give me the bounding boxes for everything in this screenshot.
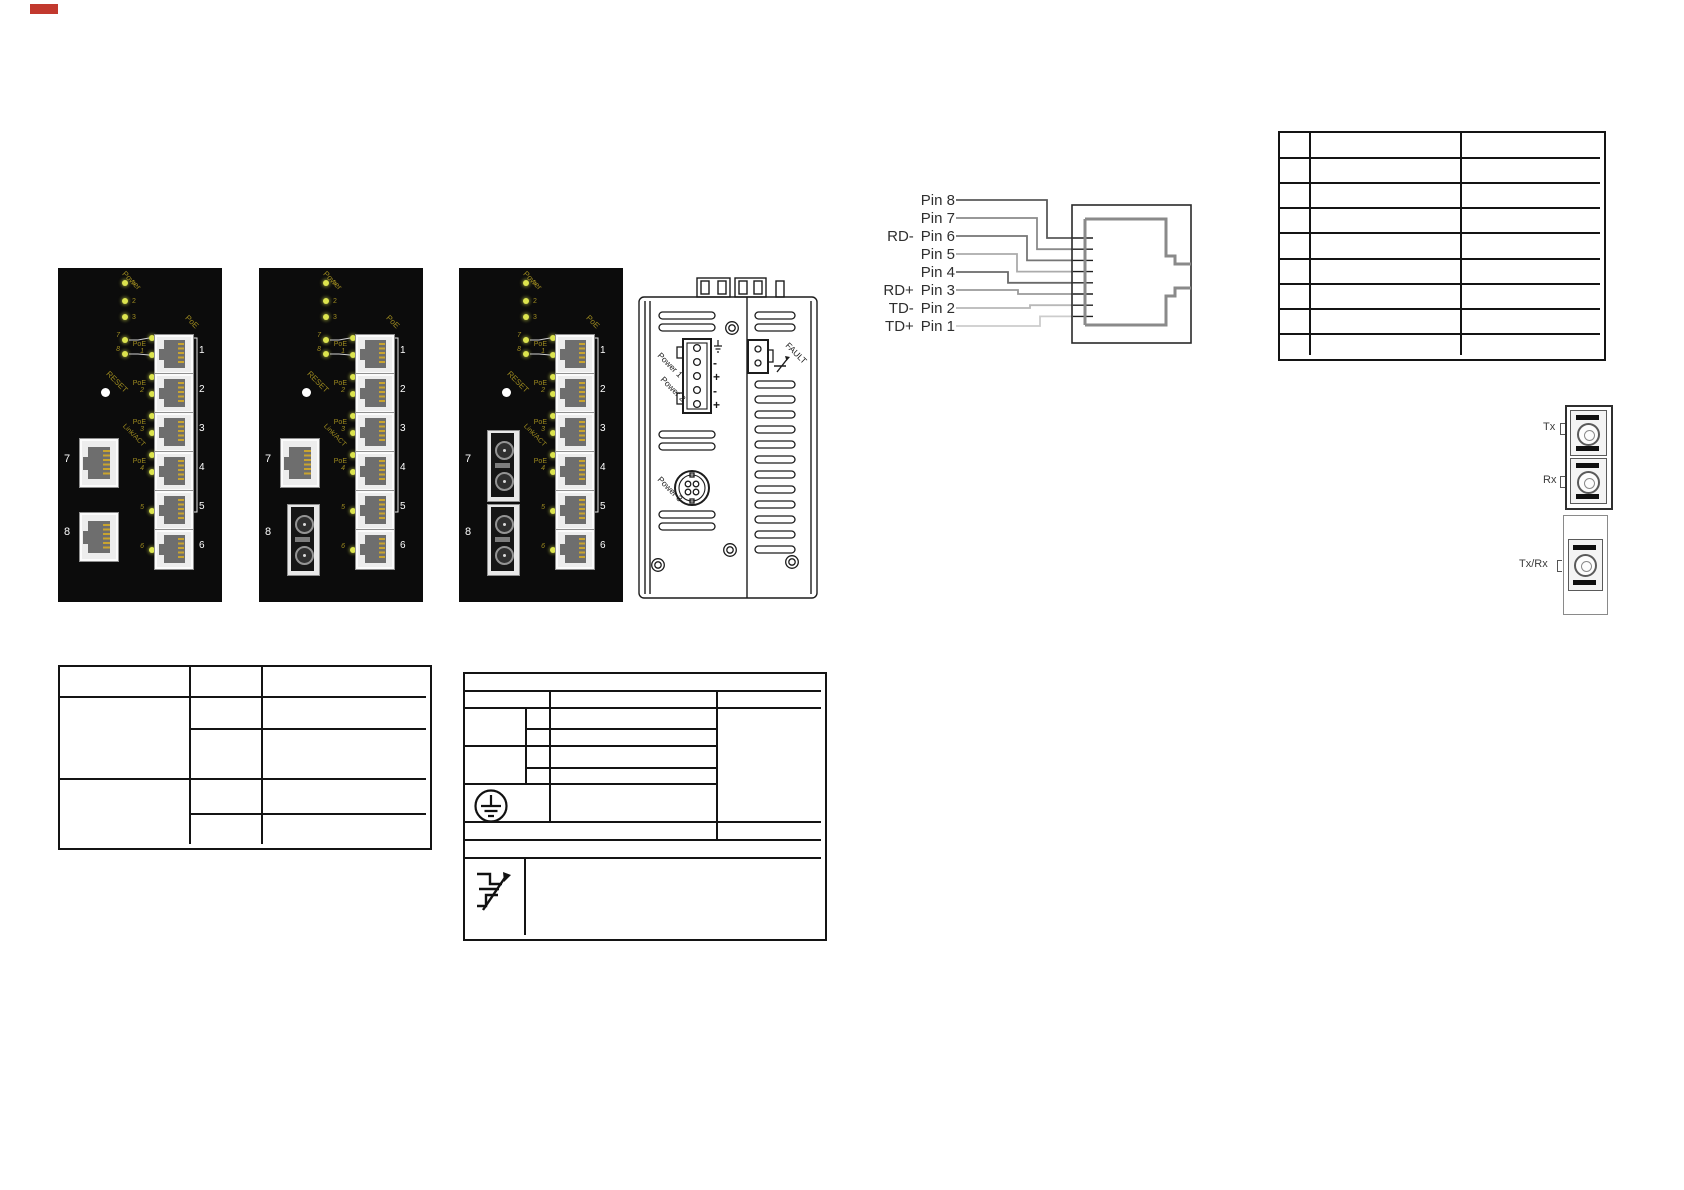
port-number: 2 (400, 385, 406, 395)
rj45-port (555, 373, 595, 414)
grid-line (465, 783, 717, 785)
power-led-number: 1 (333, 280, 337, 288)
rj45-port (355, 451, 395, 492)
uplink-led-number: 8 (108, 346, 120, 354)
uplink-port-number: 8 (64, 527, 70, 537)
pin-wire (956, 218, 1073, 249)
port-led-number: 6 (327, 543, 345, 551)
rj45-jack-outline (1072, 205, 1191, 343)
txrx-bracket (1557, 560, 1562, 572)
power-led (523, 280, 529, 286)
rj45-port (355, 334, 395, 375)
ground-symbol-icon (714, 340, 722, 352)
power-led (122, 298, 128, 304)
fault-label: FAULT (784, 340, 809, 365)
pin-wire (956, 200, 1073, 238)
screws (652, 322, 799, 572)
grid-line (1460, 133, 1462, 355)
vent-slots (659, 312, 795, 553)
uplink-led-number: 8 (309, 346, 321, 354)
table-bottom-middle (463, 672, 827, 941)
uplink-port-number: 8 (465, 527, 471, 537)
port-led-number: 2 (527, 387, 545, 395)
grid-line (526, 728, 717, 730)
port-led-number: 5 (126, 504, 144, 512)
rj45-port (555, 529, 595, 570)
uplink-rj45-port (79, 512, 119, 562)
uplink-fiber-port (487, 504, 520, 576)
poe-group-label: PoE (183, 314, 199, 330)
rj45-port (555, 490, 595, 531)
rj45-jack-cavity (1085, 219, 1191, 325)
power-led-number: 2 (333, 298, 337, 306)
port-number: 3 (400, 424, 406, 434)
tx-label: Tx (1543, 421, 1555, 433)
port-number: 5 (199, 502, 205, 512)
power-led-number: 2 (533, 298, 537, 306)
port-led-number: 1 (327, 348, 345, 356)
rx-bracket (1560, 476, 1565, 488)
grid-line (1280, 157, 1600, 159)
grid-line (465, 707, 821, 709)
grid-line (549, 691, 551, 822)
grid-line (190, 728, 426, 730)
front-panel-7-copper-1-fiber: Power12378RESETLink/ACTPoEPoE11PoE22PoE3… (259, 268, 423, 602)
grid-line (60, 778, 426, 780)
power-led (323, 280, 329, 286)
pin-wire (956, 290, 1073, 294)
fiber-simplex-sc-diagram (1563, 515, 1608, 615)
pin-wire (956, 272, 1073, 283)
uplink-rj45-port (79, 438, 119, 488)
panel-annotation-lines (259, 268, 423, 602)
rj45-port (555, 412, 595, 453)
port-led-number: 5 (327, 504, 345, 512)
uplink-port-number: 7 (265, 454, 271, 464)
table-bottom-left (58, 665, 432, 850)
device-top-view: Power 1 Power 2 Power 3 FAULT - + - + (637, 268, 820, 602)
rj45-port (355, 412, 395, 453)
port-number: 2 (600, 385, 606, 395)
rj45-port (154, 451, 194, 492)
rj45-port (154, 490, 194, 531)
port-number: 6 (600, 541, 606, 551)
grid-line (1280, 232, 1600, 234)
power-led (323, 314, 329, 320)
polarity-mark: - (713, 356, 717, 370)
grid-line (189, 667, 191, 844)
grid-line (526, 767, 717, 769)
tx-bracket (1560, 423, 1565, 435)
sc-connector-rx (1570, 458, 1607, 504)
polarity-mark: - (713, 384, 717, 398)
grid-line (261, 667, 263, 844)
port-number: 1 (400, 346, 406, 356)
manual-page: Power12378RESETLink/ACTPoEPoE11PoE22PoE3… (0, 0, 1684, 1190)
grid-line (1280, 308, 1600, 310)
fiber-duplex-sc-diagram (1565, 405, 1613, 510)
port-led-number: 6 (126, 543, 144, 551)
poe-group-label: PoE (384, 314, 400, 330)
reset-button (502, 388, 511, 397)
port-led-number: 4 (327, 465, 345, 473)
port-number: 4 (199, 463, 205, 473)
power-led-number: 3 (533, 314, 537, 322)
reset-button (302, 388, 311, 397)
port-number: 1 (600, 346, 606, 356)
grid-line (465, 745, 717, 747)
polarity-mark: + (713, 370, 720, 384)
uplink-led-number: 8 (509, 346, 521, 354)
pin-wire (956, 254, 1073, 272)
grid-line (1280, 283, 1600, 285)
rj45-port (555, 334, 595, 375)
poe-group-label: PoE (584, 314, 600, 330)
rx-label: Rx (1543, 474, 1556, 486)
uplink-fiber-port (487, 430, 520, 502)
port-number: 5 (400, 502, 406, 512)
port-number: 3 (199, 424, 205, 434)
table-top-right (1278, 131, 1606, 361)
uplink-led-number: 7 (309, 332, 321, 340)
grid-line (465, 857, 821, 859)
power-led-number: 1 (132, 280, 136, 288)
uplink-rj45-port (280, 438, 320, 488)
pin-wire (956, 316, 1073, 326)
txrx-label: Tx/Rx (1519, 558, 1548, 570)
power-led-number: 2 (132, 298, 136, 306)
port-led-number: 3 (126, 426, 144, 434)
sc-connector-tx (1570, 410, 1607, 456)
port-led-number: 1 (126, 348, 144, 356)
rj45-port (154, 412, 194, 453)
uplink-fiber-port (287, 504, 320, 576)
grid-line (1280, 182, 1600, 184)
rj45-pinout-diagram (835, 185, 1215, 355)
grid-line (465, 839, 821, 841)
port-led-number: 5 (527, 504, 545, 512)
port-led-number: 4 (126, 465, 144, 473)
fault-relay-terminal (748, 340, 768, 373)
rj45-port (154, 373, 194, 414)
port-led-number: 2 (126, 387, 144, 395)
rj45-port (154, 529, 194, 570)
port-led-number: 1 (527, 348, 545, 356)
polarity-mark: + (713, 398, 720, 412)
protective-earth-icon (473, 788, 509, 824)
red-mark (30, 4, 58, 14)
relay-contact-icon (774, 358, 788, 372)
rj45-port (555, 451, 595, 492)
front-panel-6-copper-2-fiber: Power12378RESETLink/ACTPoEPoE11PoE22PoE3… (459, 268, 623, 602)
power3-label: Power 3 (656, 474, 685, 503)
port-led-number: 4 (527, 465, 545, 473)
uplink-port-number: 7 (465, 454, 471, 464)
uplink-port-number: 8 (265, 527, 271, 537)
power-led (122, 280, 128, 286)
surge-impulse-icon (473, 862, 519, 914)
panel-annotation-lines (459, 268, 623, 602)
rj45-port (355, 529, 395, 570)
uplink-led-number: 7 (108, 332, 120, 340)
port-led-number: 3 (327, 426, 345, 434)
port-number: 1 (199, 346, 205, 356)
port-number: 6 (400, 541, 406, 551)
port-led-number: 6 (527, 543, 545, 551)
rj45-port (154, 334, 194, 375)
port-number: 3 (600, 424, 606, 434)
rj45-port (355, 373, 395, 414)
rj45-port (355, 490, 395, 531)
port-number: 2 (199, 385, 205, 395)
pin-wire (956, 305, 1073, 308)
power-led (523, 314, 529, 320)
grid-line (716, 691, 718, 840)
grid-line (1280, 258, 1600, 260)
sc-connector-txrx (1568, 539, 1603, 591)
power-led (523, 298, 529, 304)
power-led (323, 298, 329, 304)
port-number: 4 (400, 463, 406, 473)
uplink-led-number: 7 (509, 332, 521, 340)
grid-line (465, 690, 821, 692)
grid-line (1280, 333, 1600, 335)
port-led-number: 3 (527, 426, 545, 434)
power-led-number: 1 (533, 280, 537, 288)
front-panel-8-copper-ports: Power12378RESETLink/ACTPoEPoE11PoE22PoE3… (58, 268, 222, 602)
power1-label: Power 1 (656, 350, 685, 379)
reset-button (101, 388, 110, 397)
port-number: 6 (199, 541, 205, 551)
pin-wire (956, 236, 1073, 260)
port-led-number: 2 (327, 387, 345, 395)
power-led-number: 3 (333, 314, 337, 322)
grid-line (465, 821, 821, 823)
grid-line (524, 858, 526, 935)
grid-line (1309, 133, 1311, 355)
port-number: 4 (600, 463, 606, 473)
grid-line (1280, 207, 1600, 209)
uplink-port-number: 7 (64, 454, 70, 464)
grid-line (190, 813, 426, 815)
grid-line (60, 696, 426, 698)
power-led-number: 3 (132, 314, 136, 322)
port-number: 5 (600, 502, 606, 512)
power-led (122, 314, 128, 320)
